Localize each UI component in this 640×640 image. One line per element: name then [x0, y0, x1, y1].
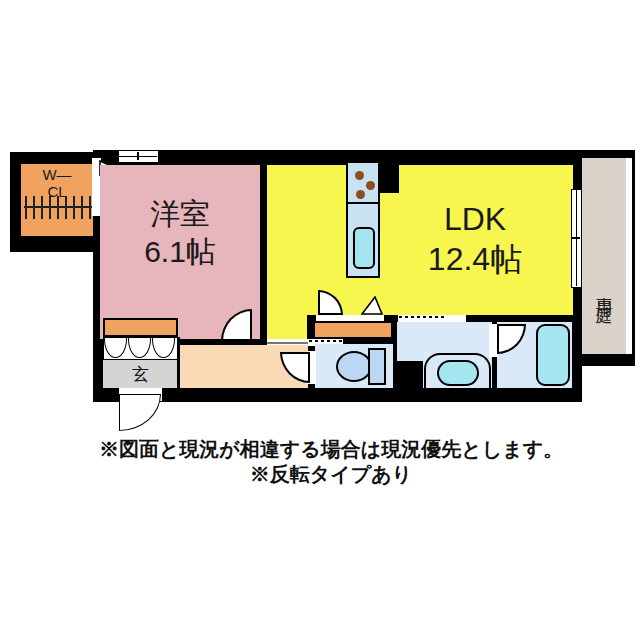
window-tick [572, 237, 580, 239]
hanger-pipe-bar [24, 206, 92, 208]
counter-divider [348, 202, 378, 204]
entrance-label: 玄 [132, 363, 149, 386]
sliding-door-icon [398, 315, 466, 322]
sliding-door-dashes [399, 316, 444, 318]
kitchen-sink-icon [353, 227, 375, 269]
window-tick [137, 152, 139, 160]
disclaimer-line1: ※図面と現況が相違する場合は現況優先とします。 [11, 437, 640, 462]
window-icon [571, 189, 582, 288]
wall-kitchen-chunk [380, 160, 399, 193]
sliding-door-dashes [309, 340, 342, 342]
sink-icon [437, 360, 479, 386]
garden-edge [626, 158, 632, 354]
disclaimer-notes: ※図面と現況が相違する場合は現況優先とします。 ※反転タイプあり [11, 437, 640, 487]
garden-label: 専用庭 [582, 225, 626, 355]
toilet-tank-icon [368, 348, 386, 385]
folding-door-icon [128, 338, 151, 358]
wall-washroom-notch [397, 361, 423, 388]
floorplan-canvas: W— CL 洋室 6.1帖 LDK 12.4帖 専用庭 [0, 0, 640, 640]
ldk-floor-extension [267, 315, 307, 339]
sliding-door-track [267, 342, 308, 344]
stove-burners-icon [355, 171, 364, 180]
folding-door-icon [152, 338, 175, 358]
stove-burners-icon [366, 181, 375, 190]
disclaimer-line2: ※反転タイプあり [11, 462, 640, 487]
ldk-name: LDK [400, 199, 550, 239]
stove-burners-icon [356, 190, 365, 199]
shoe-closet [103, 337, 178, 360]
wcl-label-line1: W— [24, 166, 90, 183]
bathtub-icon [536, 324, 570, 386]
entrance-door-swing-icon [119, 394, 161, 431]
ldk-size: 12.4帖 [400, 239, 550, 279]
window-icon [118, 150, 159, 163]
western-room-name: 洋室 [100, 195, 260, 233]
entrance-floor: 玄 [103, 360, 178, 388]
wcl-label: W— CL [24, 166, 90, 200]
storage-shelf [103, 318, 178, 337]
wcl-label-line2: CL [24, 183, 90, 200]
folding-door-icon [104, 338, 127, 358]
storage-shelf [313, 321, 393, 339]
opening-marker-icon [361, 296, 384, 316]
toilet-icon [336, 351, 372, 382]
western-room-size: 6.1帖 [100, 233, 260, 271]
western-room-label: 洋室 6.1帖 [100, 195, 260, 271]
ldk-label: LDK 12.4帖 [400, 199, 550, 279]
